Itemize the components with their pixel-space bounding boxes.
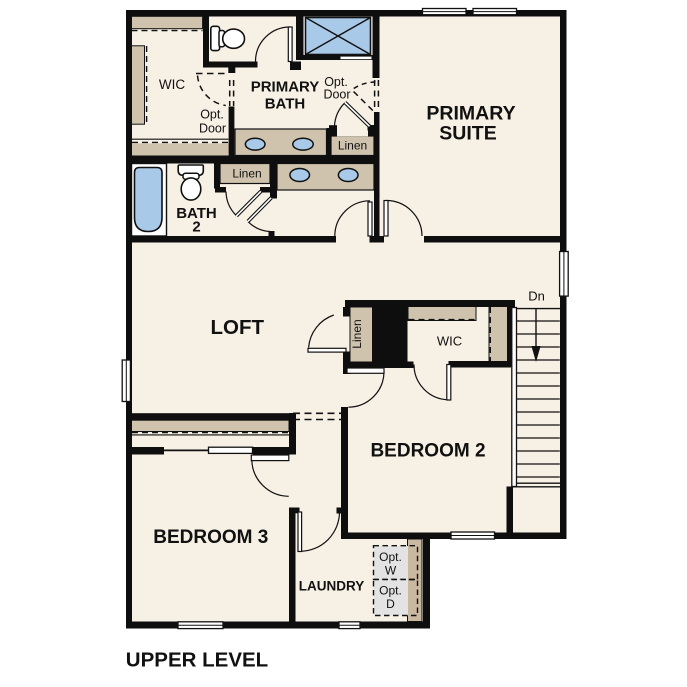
svg-text:SUITE: SUITE (439, 123, 496, 145)
svg-text:UPPER LEVEL: UPPER LEVEL (126, 649, 268, 672)
svg-text:Linen: Linen (232, 167, 261, 181)
svg-text:Linen: Linen (350, 319, 364, 348)
svg-text:W: W (385, 564, 397, 578)
svg-text:Opt.: Opt. (379, 550, 402, 564)
svg-text:LOFT: LOFT (211, 316, 265, 339)
svg-text:Linen: Linen (338, 139, 367, 153)
svg-text:Opt.: Opt. (379, 584, 402, 598)
svg-text:PRIMARY: PRIMARY (251, 79, 320, 96)
svg-text:Opt.: Opt. (200, 108, 224, 122)
svg-text:BEDROOM 2: BEDROOM 2 (370, 441, 485, 462)
svg-text:PRIMARY: PRIMARY (426, 103, 515, 125)
svg-text:2: 2 (192, 219, 200, 236)
svg-text:LAUNDRY: LAUNDRY (299, 579, 365, 594)
svg-text:WIC: WIC (437, 334, 462, 349)
svg-text:WIC: WIC (159, 77, 185, 92)
svg-text:Door: Door (323, 88, 350, 102)
svg-text:BATH: BATH (265, 96, 306, 113)
svg-text:BEDROOM 3: BEDROOM 3 (153, 527, 268, 548)
svg-text:Dn: Dn (528, 289, 545, 304)
svg-text:D: D (386, 597, 395, 611)
svg-text:Door: Door (199, 122, 226, 136)
